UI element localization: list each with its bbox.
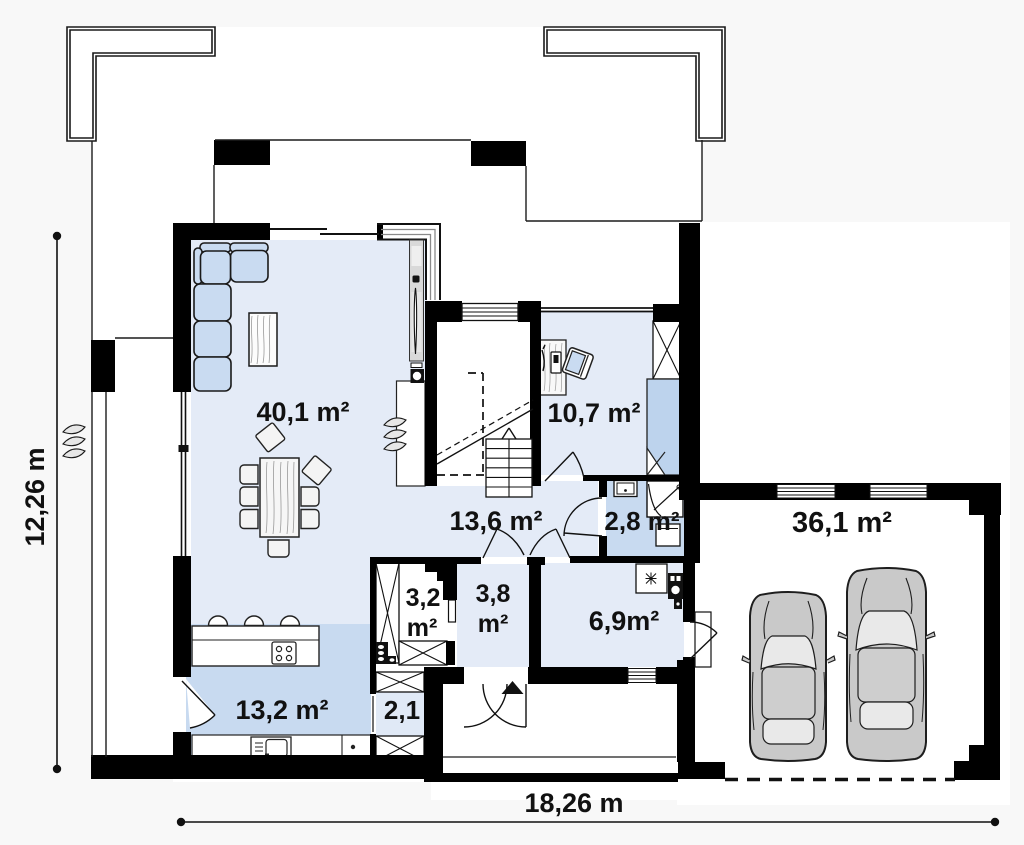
svg-text:m²: m² <box>478 610 509 638</box>
svg-text:m²: m² <box>407 614 438 642</box>
svg-text:2,1: 2,1 <box>384 695 420 725</box>
svg-text:3,2: 3,2 <box>406 584 441 612</box>
svg-text:40,1 m²: 40,1 m² <box>256 397 349 427</box>
svg-text:2,8 m²: 2,8 m² <box>604 506 679 536</box>
svg-text:6,9m²: 6,9m² <box>589 606 660 636</box>
svg-text:36,1 m²: 36,1 m² <box>792 507 892 539</box>
svg-text:18,26 m: 18,26 m <box>524 788 623 818</box>
svg-text:3,8: 3,8 <box>476 580 511 608</box>
svg-text:10,7 m²: 10,7 m² <box>547 398 640 428</box>
svg-text:13,2 m²: 13,2 m² <box>235 695 328 725</box>
svg-text:13,6 m²: 13,6 m² <box>449 506 542 536</box>
svg-text:12,26 m: 12,26 m <box>20 447 50 546</box>
